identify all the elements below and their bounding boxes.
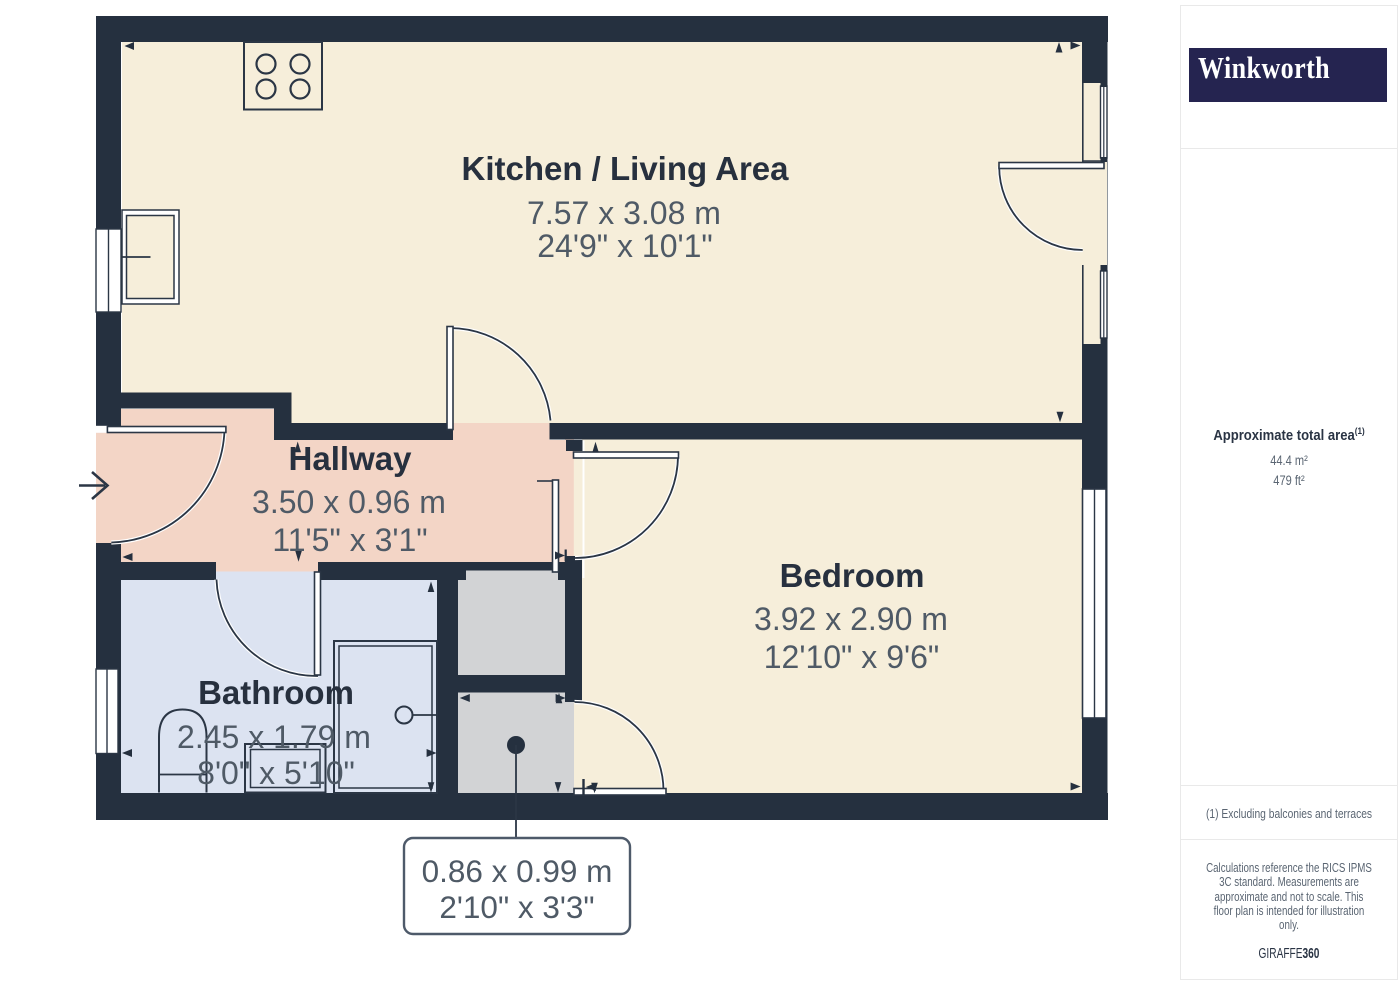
svg-text:3.50 x 0.96 m: 3.50 x 0.96 m (252, 484, 446, 520)
svg-text:2'10" x 3'3": 2'10" x 3'3" (439, 889, 594, 925)
svg-text:Hallway: Hallway (289, 440, 413, 477)
svg-text:Bathroom: Bathroom (198, 674, 354, 711)
svg-text:0.86 x 0.99 m: 0.86 x 0.99 m (422, 853, 613, 889)
svg-text:Kitchen / Living Area: Kitchen / Living Area (461, 150, 789, 187)
svg-text:8'0" x 5'10": 8'0" x 5'10" (197, 755, 355, 791)
svg-text:2.45 x 1.79 m: 2.45 x 1.79 m (177, 719, 371, 755)
svg-text:3.92 x 2.90 m: 3.92 x 2.90 m (754, 601, 948, 637)
svg-text:24'9" x 10'1": 24'9" x 10'1" (537, 228, 713, 264)
svg-text:12'10" x 9'6": 12'10" x 9'6" (764, 639, 940, 675)
svg-text:Bedroom: Bedroom (780, 557, 925, 594)
svg-text:7.57 x 3.08 m: 7.57 x 3.08 m (527, 195, 721, 231)
svg-text:11'5" x 3'1": 11'5" x 3'1" (272, 522, 427, 558)
